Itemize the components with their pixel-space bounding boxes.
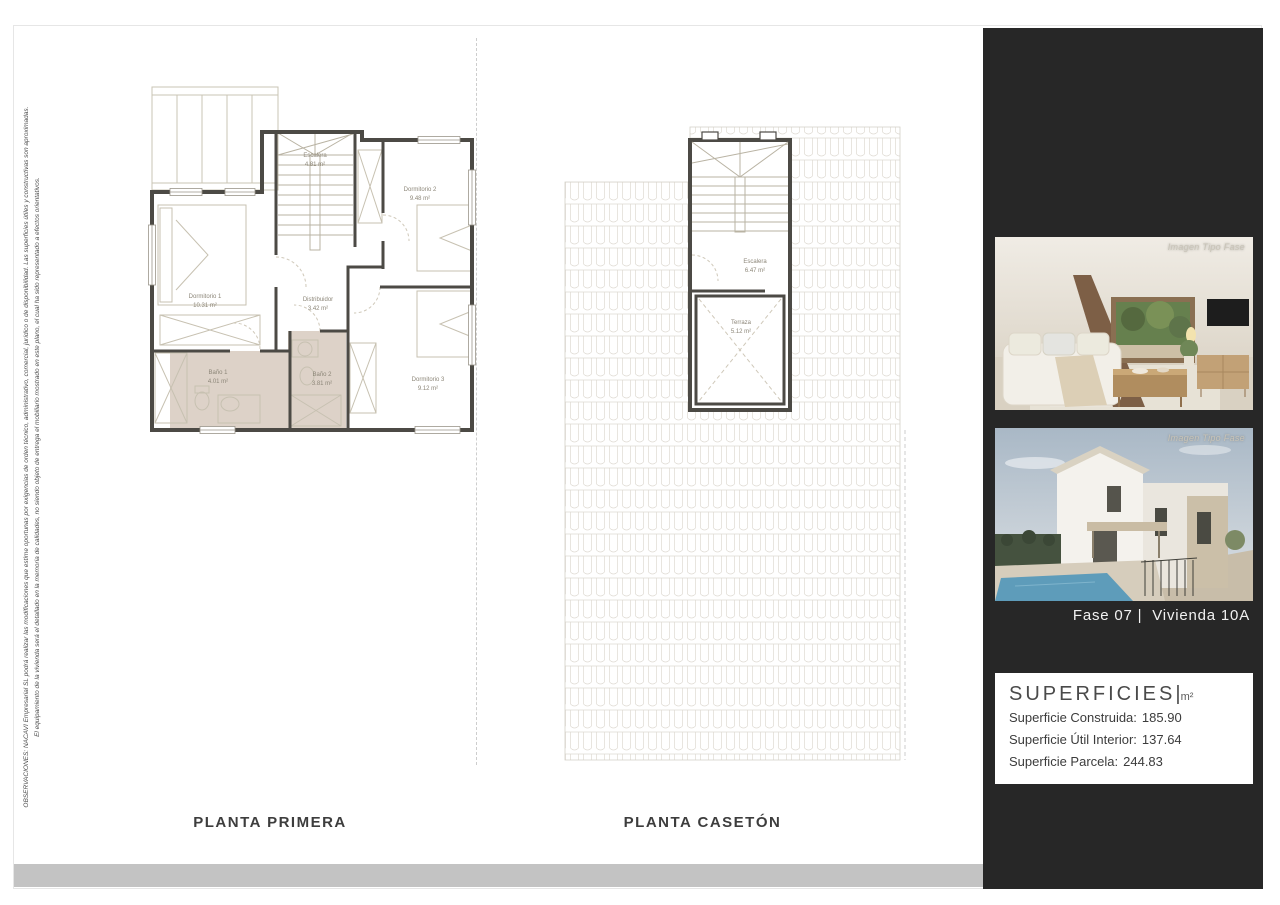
room-label-dormitorio3-area: 9.12 m² xyxy=(418,386,438,392)
bath2-floor xyxy=(288,331,346,428)
room-label-distribuidor-area: 3.42 m² xyxy=(308,306,328,312)
superficies-title-text: SUPERFICIES xyxy=(1009,683,1175,705)
chimney-2 xyxy=(760,132,776,140)
room-label-terraza-name: Terraza xyxy=(731,320,752,326)
floor-plan-planta-caseton: Escalera 6.47 m² Terraza 5.12 m² xyxy=(555,115,915,765)
surface-value: 137.64 xyxy=(1142,732,1182,747)
photo-exterior-villa: Imagen Tipo Fase xyxy=(995,428,1253,601)
superficies-panel: SUPERFICIES|m² Superficie Construida:185… xyxy=(995,673,1253,784)
photo2-caption: Imagen Tipo Fase xyxy=(1168,433,1245,443)
room-label-distribuidor-name: Distribuidor xyxy=(303,297,333,303)
surface-value: 244.83 xyxy=(1123,754,1163,769)
surface-label: Superficie Útil Interior: xyxy=(1009,732,1137,747)
room-label-escalera-area: 4.81 m² xyxy=(305,162,325,168)
pergola-outline xyxy=(152,87,278,190)
tv-screen xyxy=(1207,299,1249,326)
unit-label: Fase 07 | Vivienda 10A xyxy=(1073,607,1250,624)
superficies-unit: m² xyxy=(1181,691,1194,703)
disclaimer-text: OBSERVACIONES: NACAVI Empresarial SL pod… xyxy=(21,31,43,883)
room-label-caseton-escalera-name: Escalera xyxy=(743,259,767,265)
chimney-1 xyxy=(702,132,718,140)
photo1-caption: Imagen Tipo Fase xyxy=(1168,242,1245,252)
room-label-bano1-name: Baño 1 xyxy=(208,370,228,376)
plan-title-primera: PLANTA PRIMERA xyxy=(130,814,410,831)
disclaimer-line-1: OBSERVACIONES: NACAVI Empresarial SL pod… xyxy=(21,31,32,883)
room-label-bano2-name: Baño 2 xyxy=(312,372,332,378)
surface-value: 185.90 xyxy=(1142,710,1182,725)
surface-row-util-interior: Superficie Útil Interior:137.64 xyxy=(1009,730,1239,750)
superficies-title: SUPERFICIES|m² xyxy=(1009,683,1239,706)
floor-plan-planta-primera: Dormitorio 1 10.31 m² Dormitorio 2 9.48 … xyxy=(130,55,490,485)
room-label-dormitorio3-name: Dormitorio 3 xyxy=(412,377,445,383)
plan-title-caseton: PLANTA CASETÓN xyxy=(555,814,850,831)
surface-label: Superficie Parcela: xyxy=(1009,754,1118,769)
room-label-bano1-area: 4.01 m² xyxy=(208,379,228,385)
photo-living-room: Imagen Tipo Fase xyxy=(995,237,1253,410)
room-label-dormitorio1-area: 10.31 m² xyxy=(193,303,217,309)
small-tree xyxy=(1225,530,1245,550)
room-label-bano2-area: 3.81 m² xyxy=(312,381,332,387)
surface-row-parcela: Superficie Parcela:244.83 xyxy=(1009,752,1239,772)
room-label-caseton-escalera-area: 6.47 m² xyxy=(745,268,765,274)
surface-label: Superficie Construida: xyxy=(1009,710,1137,725)
surface-row-construida: Superficie Construida:185.90 xyxy=(1009,708,1239,728)
bath1-floor xyxy=(170,351,288,428)
staircase xyxy=(278,133,353,250)
disclaimer-line-2: El equipamiento de la vivienda será el d… xyxy=(32,31,43,883)
section-line-primera xyxy=(476,38,477,765)
room-label-dormitorio1-name: Dormitorio 1 xyxy=(189,294,222,300)
living-room-illustration xyxy=(995,237,1253,410)
sidebar: Imagen Tipo Fase xyxy=(983,28,1263,889)
room-label-escalera-name: Escalera xyxy=(303,153,327,159)
sofa xyxy=(1003,333,1121,407)
room-label-dormitorio2-name: Dormitorio 2 xyxy=(404,187,437,193)
room-label-terraza-area: 5.12 m² xyxy=(731,329,751,335)
exterior-illustration xyxy=(995,428,1253,601)
room-label-dormitorio2-area: 9.48 m² xyxy=(410,196,430,202)
footer-strip xyxy=(14,864,983,887)
